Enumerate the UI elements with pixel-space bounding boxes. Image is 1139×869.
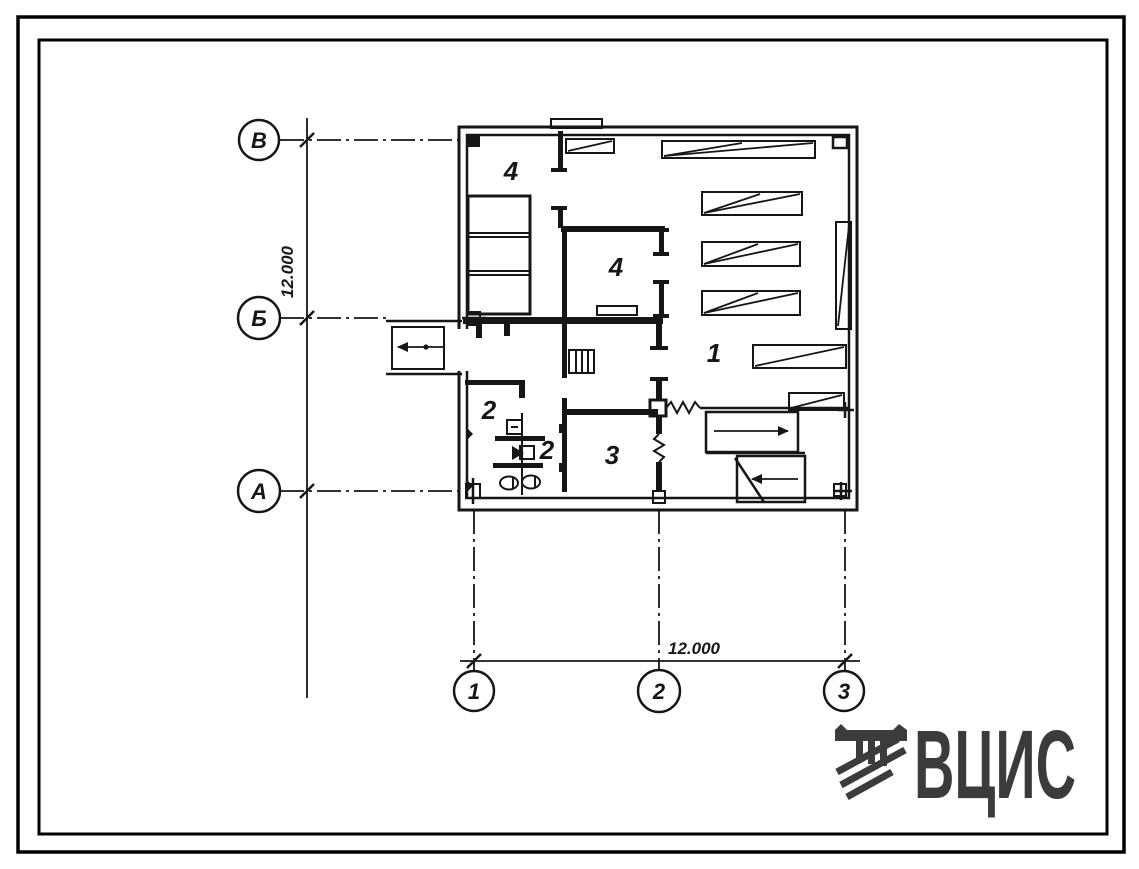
axis-circle-2: 2 [638, 670, 680, 712]
axis-circle-a: А [238, 470, 280, 512]
rack [753, 345, 846, 368]
wall-room4-top [561, 226, 665, 232]
ladder-symbol [569, 350, 594, 373]
axis-label-v: В [251, 128, 267, 153]
axis-circle-b: Б [238, 297, 280, 339]
door-swing-mark [466, 427, 473, 441]
toilet [500, 477, 518, 490]
axis-label-3: 3 [838, 679, 850, 704]
vcis-emblem-icon [835, 724, 907, 797]
wall-break-symbol-vertical [654, 434, 664, 462]
dimension-value-horizontal: 12.000 [668, 639, 721, 658]
wall-central-upper [562, 228, 567, 378]
wall-break-symbol-horizontal [666, 402, 700, 413]
wall-wc-partition [465, 380, 525, 385]
axis-label-a: А [250, 479, 267, 504]
axis-label-b: Б [251, 306, 267, 331]
axis-circle-3: 3 [824, 671, 864, 711]
axis-circle-v: В [239, 120, 279, 160]
entrance-stair [386, 321, 462, 374]
room-label-4-mid: 4 [608, 252, 624, 282]
room-label-2-left: 2 [481, 395, 497, 425]
toilet [522, 476, 540, 489]
room-label-1: 1 [707, 338, 721, 368]
rack [702, 291, 800, 315]
sanitary-fixtures [466, 413, 545, 495]
room-label-4-left: 4 [503, 156, 519, 186]
rack [566, 139, 614, 153]
rack [702, 192, 802, 215]
storage-cells [468, 196, 530, 314]
wall-room3-top [565, 409, 658, 415]
axis-label-1: 1 [468, 679, 480, 704]
vcis-logo: ВЦИС [835, 710, 1076, 819]
cistern [507, 420, 522, 434]
rack [702, 242, 800, 266]
main-staircase [700, 408, 848, 502]
dimension-value-vertical: 12.000 [278, 245, 297, 298]
vcis-logo-text: ВЦИС [914, 710, 1076, 819]
door-sill [597, 306, 637, 315]
axis-circle-1: 1 [454, 671, 494, 711]
rack [662, 141, 815, 158]
room-label-2-right: 2 [539, 435, 555, 465]
room-label-3: 3 [605, 440, 620, 470]
axis-label-2: 2 [652, 679, 666, 704]
drawing-sheet: 12.000 12.000 В Б А 1 2 [0, 0, 1139, 869]
